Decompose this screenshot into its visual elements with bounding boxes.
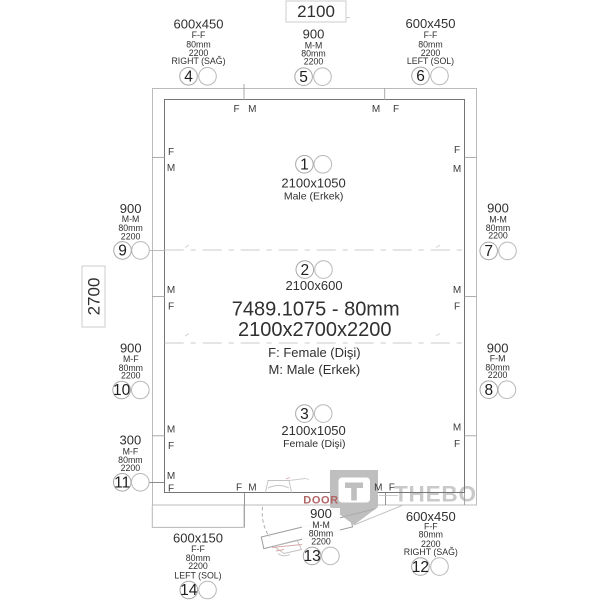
svg-text:M: M	[167, 285, 175, 296]
svg-text:M: M	[167, 425, 175, 436]
svg-text:M: M	[453, 164, 461, 175]
svg-text:M: Male (Erkek): M: Male (Erkek)	[269, 362, 361, 377]
svg-text:2100x1050: 2100x1050	[281, 423, 345, 438]
svg-text:2200: 2200	[311, 537, 331, 547]
svg-text:2200: 2200	[121, 371, 141, 381]
svg-text:7489.1075 - 80mm: 7489.1075 - 80mm	[232, 299, 400, 321]
svg-text:M: M	[372, 104, 380, 115]
svg-text:6: 6	[416, 68, 425, 85]
svg-text:900: 900	[303, 26, 325, 41]
svg-text:M: M	[167, 163, 175, 174]
svg-text:2700: 2700	[85, 278, 104, 316]
svg-text:F: F	[168, 302, 174, 313]
svg-text:F: F	[168, 147, 174, 158]
svg-text:M: M	[248, 104, 256, 115]
svg-text:F: Female (Dişi): F: Female (Dişi)	[268, 345, 360, 360]
svg-text:300: 300	[120, 432, 142, 447]
svg-text:M: M	[167, 471, 175, 482]
svg-text:LEFT (SOL): LEFT (SOL)	[407, 56, 454, 66]
svg-text:Female (Dişi): Female (Dişi)	[283, 438, 345, 450]
svg-text:4: 4	[184, 69, 193, 86]
svg-text:900: 900	[487, 201, 509, 216]
svg-text:600x450: 600x450	[406, 16, 456, 31]
svg-text:2100x1050: 2100x1050	[281, 176, 345, 191]
svg-text:F: F	[233, 104, 239, 115]
svg-text:F: F	[236, 483, 242, 494]
svg-text:11: 11	[114, 475, 130, 492]
svg-text:8: 8	[484, 382, 493, 399]
svg-text:F: F	[454, 302, 460, 313]
svg-text:LEFT (SOL): LEFT (SOL)	[174, 571, 221, 581]
svg-text:F: F	[454, 439, 460, 450]
svg-text:2100x600: 2100x600	[285, 278, 342, 293]
svg-text:2200: 2200	[121, 463, 141, 473]
svg-text:F: F	[389, 482, 395, 493]
svg-text:RIGHT (SAĞ): RIGHT (SAĞ)	[404, 547, 458, 557]
svg-text:DOOR: DOOR	[303, 495, 338, 507]
svg-text:F-F: F-F	[424, 30, 438, 40]
svg-text:10: 10	[113, 382, 131, 399]
svg-text:2100: 2100	[297, 2, 335, 21]
svg-text:F: F	[168, 483, 174, 494]
svg-text:900: 900	[310, 506, 332, 521]
svg-text:5: 5	[299, 69, 308, 86]
svg-text:M: M	[374, 482, 382, 493]
svg-text:Male (Erkek): Male (Erkek)	[284, 190, 344, 202]
svg-text:F-F: F-F	[192, 30, 206, 40]
svg-text:2200: 2200	[304, 56, 324, 66]
svg-text:2200: 2200	[121, 231, 141, 241]
svg-text:M: M	[453, 423, 461, 434]
svg-text:9: 9	[118, 243, 127, 260]
svg-text:2: 2	[300, 262, 309, 279]
svg-text:7: 7	[484, 243, 493, 260]
svg-text:2200: 2200	[188, 561, 208, 571]
svg-text:3: 3	[300, 406, 309, 423]
svg-text:F: F	[393, 104, 399, 115]
svg-text:M: M	[453, 285, 461, 296]
svg-text:2200: 2200	[488, 370, 508, 380]
svg-text:12: 12	[412, 559, 429, 576]
svg-text:F: F	[168, 441, 174, 452]
svg-text:13: 13	[303, 548, 320, 565]
svg-text:2100x2700x2200: 2100x2700x2200	[238, 319, 391, 341]
svg-text:14: 14	[180, 582, 198, 599]
svg-text:2200: 2200	[488, 231, 508, 241]
svg-text:M: M	[248, 483, 256, 494]
svg-text:1: 1	[300, 157, 309, 174]
svg-text:RIGHT (SAĞ): RIGHT (SAĞ)	[171, 56, 225, 66]
svg-text:F: F	[454, 145, 460, 156]
